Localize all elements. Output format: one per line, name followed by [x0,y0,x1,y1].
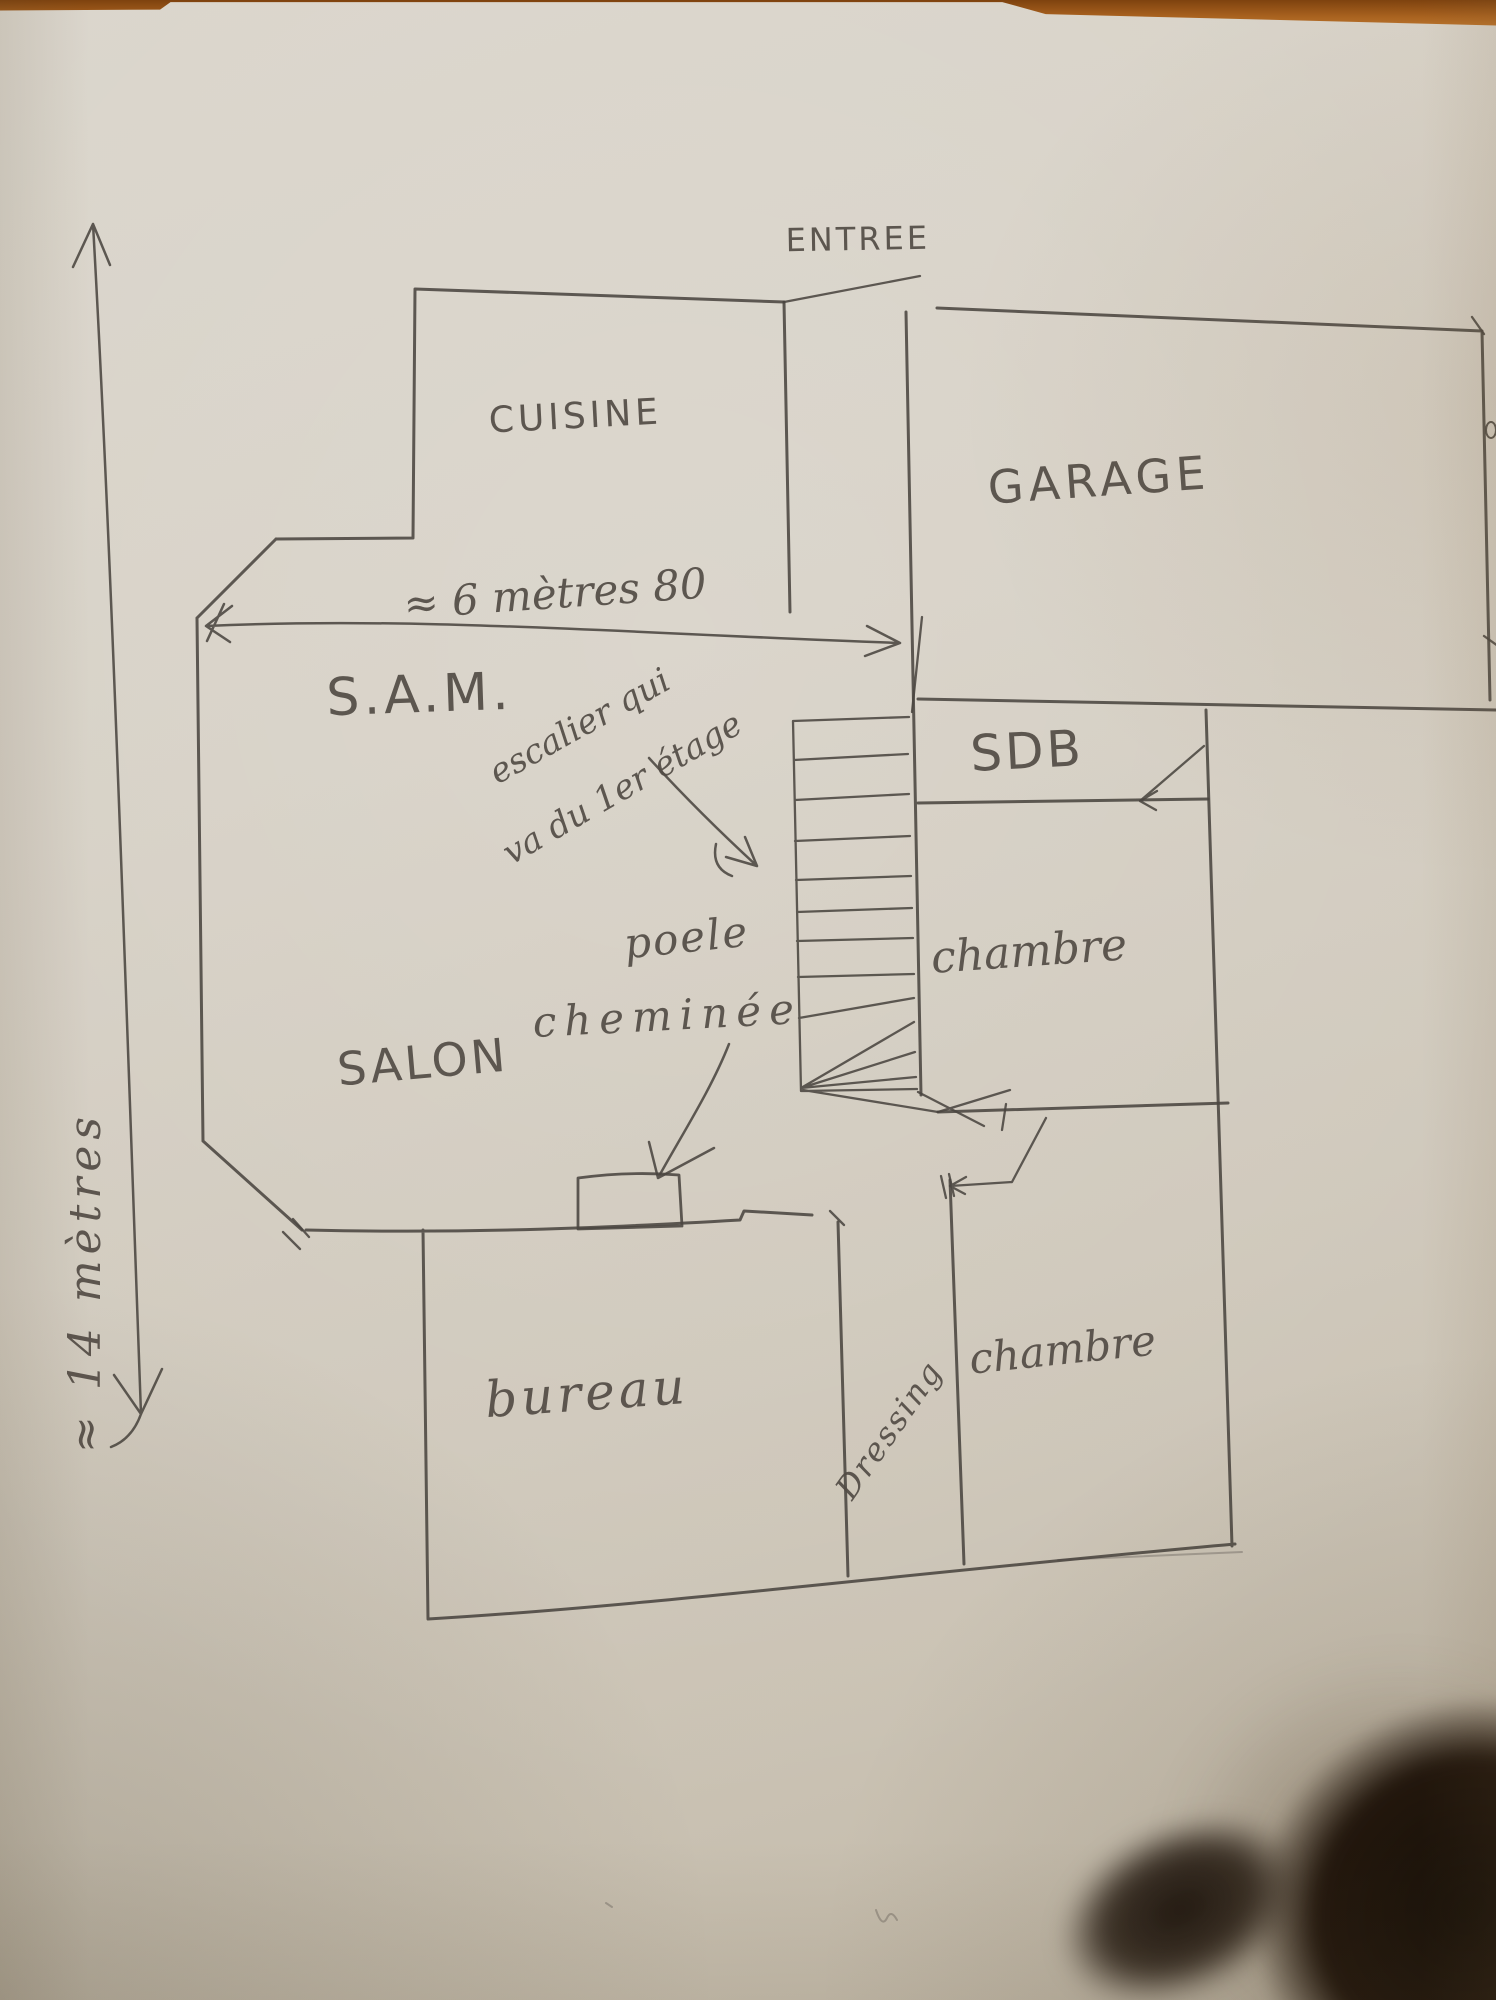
label-chambre-lower: chambre [967,1315,1158,1383]
label-garage: GARAGE [986,445,1212,514]
dim-width-label: ≈ 6 mètres 80 [402,559,708,629]
label-sam: S.A.M. [325,662,513,728]
label-salon: SALON [335,1028,510,1097]
label-sdb: SDB [969,719,1085,783]
label-dressing: Dressing [827,1353,951,1507]
annotation-arrows [649,758,757,1178]
note-poele: poele [622,907,752,969]
label-chambre-upper: chambre [929,919,1128,984]
garage-window-mark [1486,422,1496,438]
label-bureau: bureau [483,1357,690,1429]
paper-photo: ENTREE CUISINE GARAGE S.A.M. SDB chambre… [0,0,1496,2000]
dim-height-label: ≈ 14 mètres [60,1111,111,1453]
fireplace-box [578,1174,682,1229]
note-cheminee: cheminée [531,984,803,1047]
label-entree: ENTREE [785,219,930,260]
dimension-arrows [73,224,900,1447]
outer-walls [197,289,1496,1619]
label-cuisine: CUISINE [488,392,663,442]
